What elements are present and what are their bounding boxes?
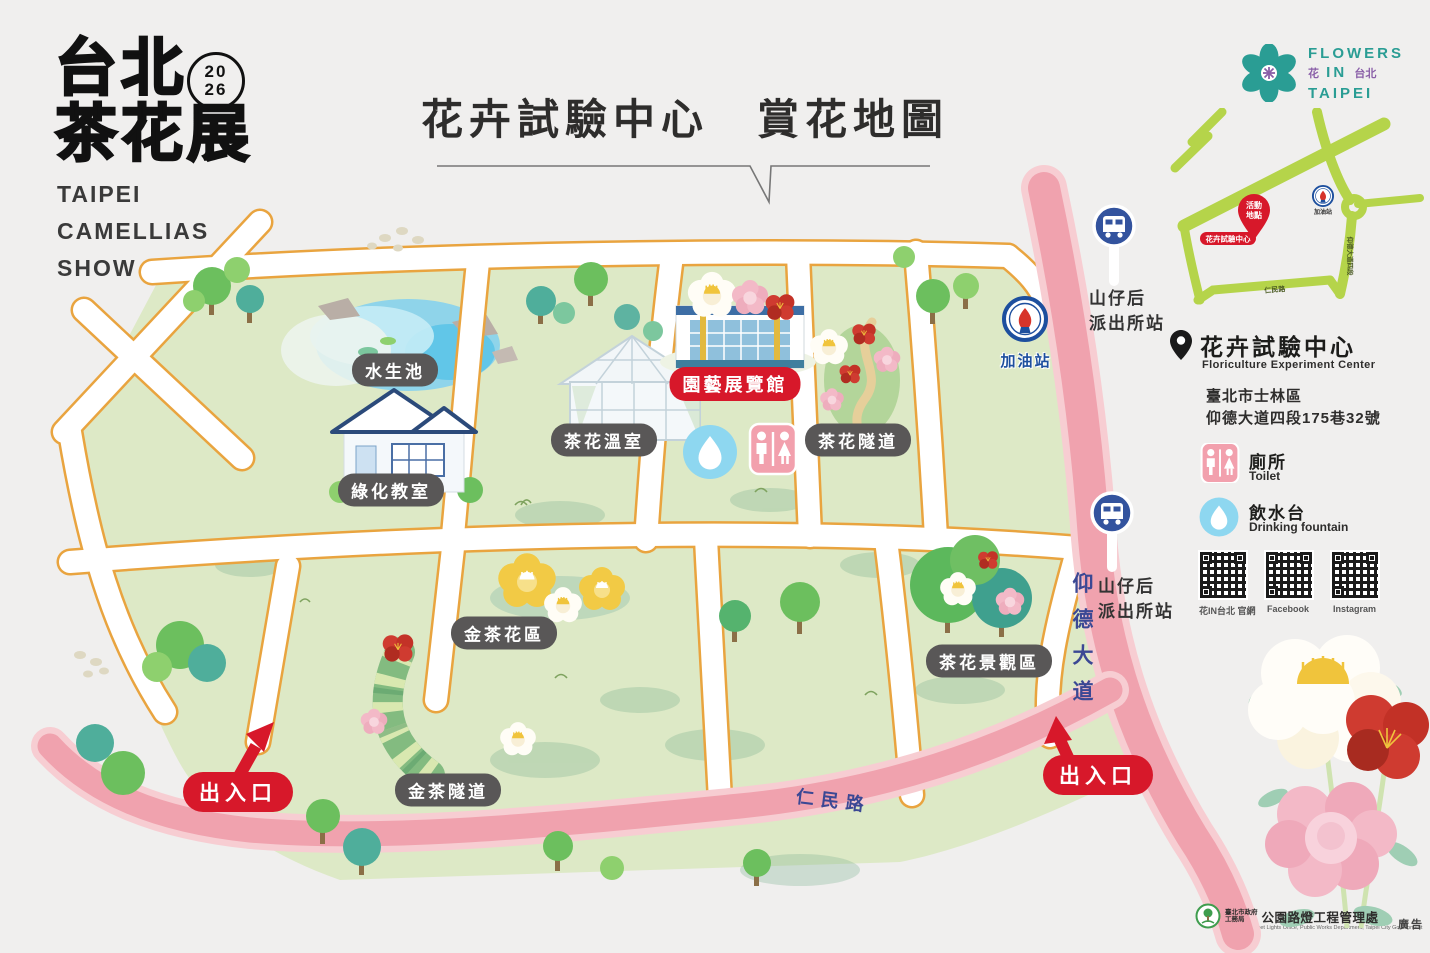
minimap-gas-station-icon: 加油站: [1313, 186, 1333, 216]
label-camellia-landscape-area: 茶花景觀區: [926, 645, 1052, 678]
decorative-camellias: [1235, 618, 1430, 930]
red-camellia: [1346, 695, 1429, 779]
locator-minimap: 仰德大道四段 仁民路 加油站 活動 地點 花卉試驗中心: [1170, 108, 1426, 320]
label-camellia-tunnel: 茶花隧道: [805, 424, 911, 457]
minimap-venue-label: 花卉試驗中心: [1200, 232, 1256, 245]
water-drop-icon: [683, 425, 737, 479]
bus-stop-top-line2: 派出所站: [1089, 311, 1165, 336]
label-bus-stop-bottom: 山仔后 派出所站: [1098, 574, 1174, 624]
label-exhibition-hall: 園藝展覽館: [670, 367, 801, 401]
legend-restroom-icon: [1200, 443, 1240, 483]
label-gas-station: 加油站: [1000, 350, 1051, 371]
label-entrance-left: 出入口: [183, 772, 293, 812]
bus-stop-top-line1: 山仔后: [1089, 286, 1165, 311]
label-yangde-boulevard: 仰德大道: [1066, 572, 1096, 716]
fit-word2-row: 花 IN 台北: [1308, 63, 1404, 84]
label-camellia-greenhouse: 茶花溫室: [551, 424, 657, 457]
minimap-gas-label: 加油站: [1313, 208, 1332, 216]
title-underline-pointer: [425, 150, 945, 210]
fit-cjk-hua: 花: [1308, 68, 1319, 80]
label-golden-tea-tunnel: 金茶隧道: [395, 774, 501, 807]
gas-station-icon: [1004, 298, 1046, 340]
label-pond: 水生池: [352, 354, 438, 387]
agency-prefix: 臺北市政府 工務局: [1225, 903, 1258, 923]
map-pin-icon: [1170, 330, 1192, 360]
bus-stop-bottom-line2: 派出所站: [1098, 599, 1174, 624]
camellia-show-map-poster: 台北 茶花展 20 26 TAIPEI CAMELLIAS SHOW 花卉試驗中…: [0, 0, 1430, 953]
minimap-road-vertical-label: 仰德大道四段: [1346, 237, 1355, 277]
agency-name: 公園路燈工程管理處: [1262, 903, 1379, 926]
label-golden-camellia-area: 金茶花區: [451, 617, 557, 650]
minimap-pin-line1: 活動: [1246, 200, 1262, 210]
fit-flower-icon: [1240, 44, 1298, 102]
legend-fountain-icon: [1199, 497, 1239, 537]
parks-office-logo-icon: [1195, 903, 1221, 929]
fit-word3: TAIPEI: [1308, 84, 1404, 103]
svg-text:花卉試驗中心: 花卉試驗中心: [1206, 234, 1251, 244]
bus-stop-bottom-line1: 山仔后: [1098, 574, 1174, 599]
fit-cjk-taipei: 台北: [1354, 68, 1376, 80]
label-entrance-right: 出入口: [1043, 755, 1153, 795]
footer-credit: 臺北市政府 工務局 公園路燈工程管理處: [1195, 903, 1379, 929]
minimap-pin-line2: 地點: [1246, 210, 1262, 220]
fit-word2: IN: [1326, 64, 1347, 81]
restroom-icon: [750, 424, 796, 474]
page-title: 花卉試驗中心 賞花地圖: [420, 86, 950, 147]
flowers-in-taipei-logo: FLOWERS 花 IN 台北 TAIPEI: [1240, 38, 1425, 108]
label-bus-stop-top: 山仔后 派出所站: [1089, 286, 1165, 336]
fit-word1: FLOWERS: [1308, 44, 1404, 63]
bus-stop-icon-top: [1094, 206, 1134, 286]
pink-camellia: [1265, 782, 1397, 897]
label-greening-classroom: 綠化教室: [338, 474, 444, 507]
